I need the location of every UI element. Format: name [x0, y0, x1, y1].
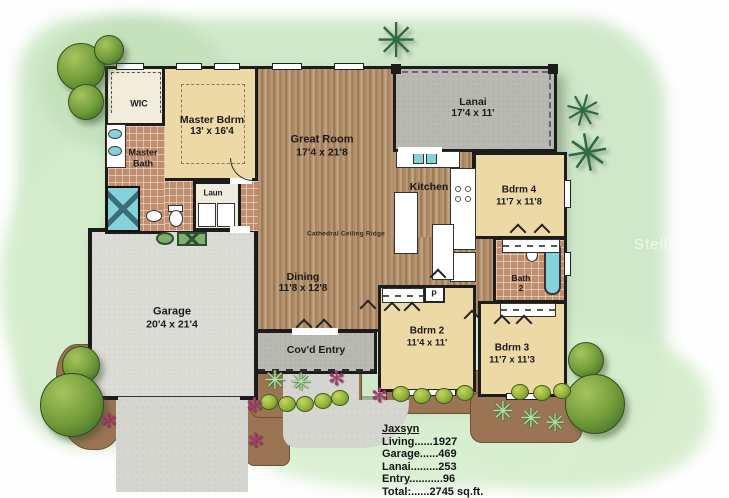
shrub-icon: [413, 388, 431, 404]
lanai-screen: [549, 74, 551, 146]
stove-coil: [465, 186, 471, 192]
lanai-slider-opening: [398, 147, 442, 154]
window: [564, 252, 571, 276]
garage-entry-opening: [230, 226, 250, 233]
garage-label: Garage20'4 x 21'4: [146, 305, 198, 330]
master-bdrm-label: Master Bdrm13' x 16'4: [180, 114, 244, 138]
window: [334, 63, 364, 70]
window: [564, 180, 571, 208]
bdrm2-closet: [382, 288, 424, 303]
bdrm2-label: Bdrm 211'4 x 11': [407, 326, 447, 349]
shrub-icon: [435, 388, 453, 404]
shower: [106, 186, 140, 232]
pedestal-sink: [146, 210, 162, 222]
area-summary: Jaxsyn Living......1927 Garage......469 …: [382, 423, 483, 498]
pantry-label: P: [431, 289, 436, 298]
driveway: [116, 398, 248, 492]
dining-label: Dining11'8 x 12'8: [279, 271, 328, 295]
flower-icon: ✻: [371, 386, 388, 406]
master-bath-label: MasterBath: [128, 147, 157, 168]
summary-line: Garage......469: [382, 448, 483, 461]
palmetto-icon: ✳: [520, 405, 542, 431]
tree-icon: [94, 35, 124, 65]
shrub-icon: [553, 383, 571, 399]
shrub-icon: [533, 385, 551, 401]
shrub-icon: [296, 396, 314, 412]
shrub-icon: [392, 386, 410, 402]
palm-tree-icon: ✳: [376, 18, 416, 66]
cathedral-ceiling-note: Cathedral Ceiling Ridge: [307, 231, 385, 238]
window: [214, 63, 240, 70]
flower-icon: ✻: [246, 396, 263, 416]
washer: [198, 203, 216, 227]
bdrm4-closet: [502, 239, 560, 253]
kitchen-sink: [426, 153, 437, 164]
window: [176, 63, 202, 70]
covd-entry-label: Cov'd Entry: [287, 344, 346, 356]
kitchen-label: Kitchen: [410, 181, 449, 193]
palmetto-icon: ✳: [264, 367, 286, 393]
palmetto-icon: ✳: [545, 412, 565, 436]
window: [272, 63, 302, 70]
toilet-bowl: [169, 210, 183, 227]
summary-line: Living......1927: [382, 436, 483, 449]
wic-label: WIC: [130, 99, 148, 110]
summary-line: Lanai.........253: [382, 461, 483, 474]
vanity-sink: [108, 129, 122, 139]
bath2-label: Bath2: [512, 273, 531, 293]
flower-icon: ✻: [100, 411, 117, 431]
tree-icon: [68, 84, 104, 120]
lanai-screen: [402, 71, 548, 73]
kitchen-sink: [413, 153, 424, 164]
shrub-icon: [278, 396, 296, 412]
palmetto-icon: ✳: [492, 398, 514, 424]
flower-icon: ✻: [247, 431, 264, 451]
shrub-icon: [456, 385, 474, 401]
plan-name: Jaxsyn: [382, 423, 483, 436]
watermark: StellarMLS: [634, 236, 717, 253]
tree-icon: [565, 374, 625, 434]
water-heater: [156, 232, 174, 245]
stove-coil: [455, 196, 461, 202]
summary-line: Total:......2745 sq.ft.: [382, 486, 483, 498]
bdrm3-label: Bdrm 311'7 x 11'3: [489, 343, 535, 366]
tree-icon: [40, 373, 104, 437]
stove-coil: [455, 186, 461, 192]
summary-line: Entry...........96: [382, 473, 483, 486]
hvac-unit: [177, 232, 207, 246]
great-room-label: Great Room17'4 x 21'8: [291, 133, 354, 158]
palm-tree-icon: ✳: [562, 125, 614, 184]
shrub-icon: [511, 384, 529, 400]
kitchen-island: [394, 192, 418, 254]
lanai-label: Lanai17'4 x 11': [451, 96, 494, 120]
garage-door-opening: [118, 396, 240, 403]
lanai-post: [548, 64, 558, 74]
window: [116, 63, 144, 70]
stove-coil: [465, 196, 471, 202]
tree-icon: [568, 342, 604, 378]
shrub-icon: [314, 393, 332, 409]
vanity-sink: [108, 146, 122, 156]
flower-icon: ✻: [328, 369, 345, 389]
laundry-label: Laun: [203, 188, 222, 197]
shrub-icon: [331, 390, 349, 406]
bdrm3-closet: [500, 303, 556, 317]
dryer: [217, 203, 235, 227]
palmetto-icon: ✳: [291, 371, 311, 395]
floor-plan-canvas: WIC Master Bdrm13' x 16'4 MasterBath Lau…: [0, 0, 729, 498]
bdrm4-label: Bdrm 411'7 x 11'8: [496, 185, 542, 208]
